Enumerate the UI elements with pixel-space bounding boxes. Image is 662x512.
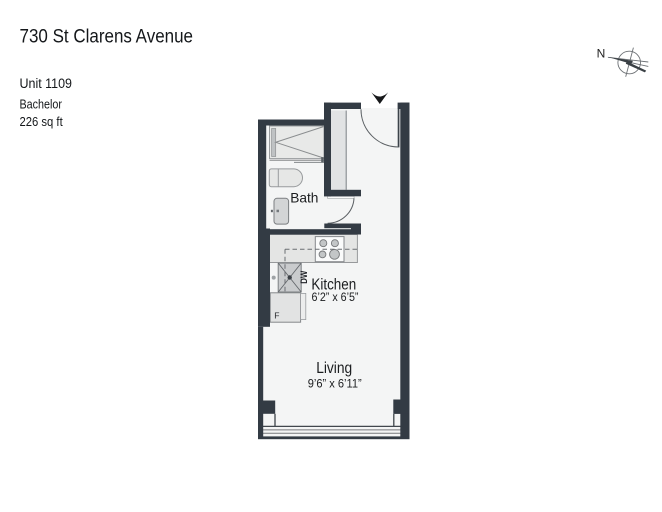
svg-text:Bachelor: Bachelor bbox=[20, 97, 63, 112]
svg-text:DW: DW bbox=[299, 271, 309, 284]
svg-text:F: F bbox=[274, 310, 279, 320]
svg-text:730 St Clarens Avenue: 730 St Clarens Avenue bbox=[20, 27, 194, 48]
svg-text:Bath: Bath bbox=[290, 190, 318, 206]
svg-text:Unit 1109: Unit 1109 bbox=[20, 76, 73, 92]
svg-text:N: N bbox=[597, 47, 606, 61]
svg-text:226 sq ft: 226 sq ft bbox=[20, 114, 64, 129]
svg-text:6’2” x 6’5”: 6’2” x 6’5” bbox=[312, 290, 359, 304]
svg-text:Living: Living bbox=[316, 360, 352, 377]
svg-text:9’6” x 6’11”: 9’6” x 6’11” bbox=[308, 377, 362, 391]
